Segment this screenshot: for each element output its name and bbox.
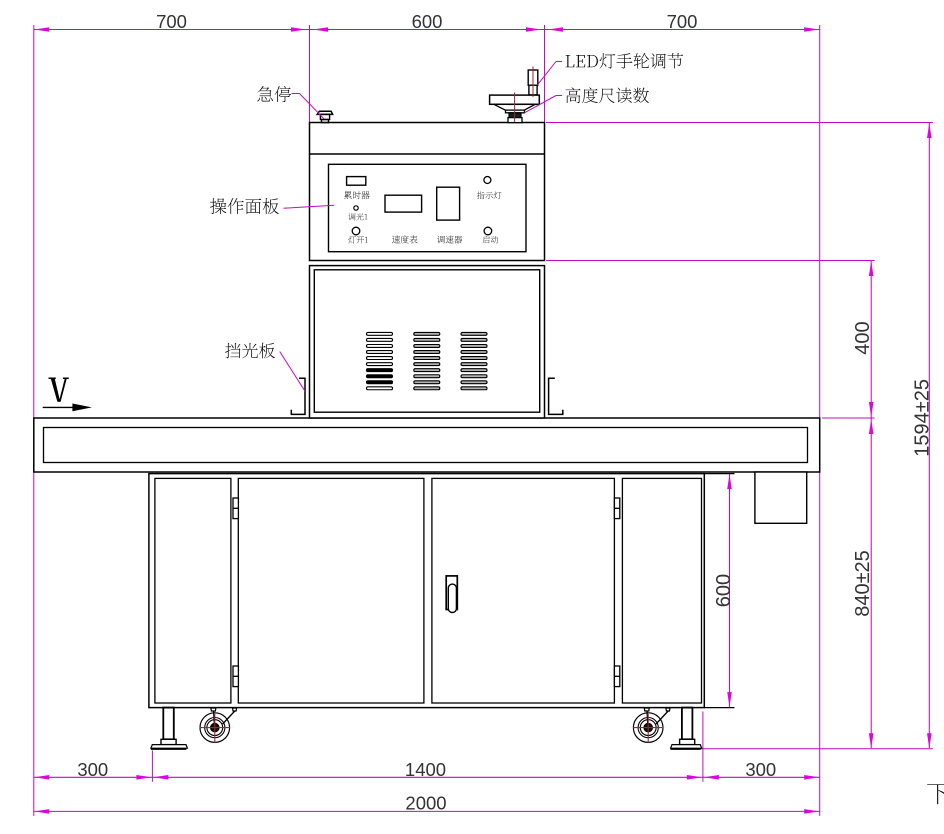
svg-text:700: 700: [156, 11, 187, 32]
svg-text:2000: 2000: [405, 793, 446, 814]
svg-text:840±25: 840±25: [852, 550, 874, 617]
svg-text:300: 300: [745, 759, 776, 780]
svg-text:1594±25: 1594±25: [911, 379, 933, 457]
svg-text:600: 600: [713, 574, 735, 607]
svg-text:600: 600: [412, 11, 443, 32]
svg-text:1400: 1400: [405, 759, 446, 780]
svg-text:300: 300: [77, 759, 108, 780]
svg-text:400: 400: [852, 321, 874, 354]
svg-text:700: 700: [667, 11, 698, 32]
